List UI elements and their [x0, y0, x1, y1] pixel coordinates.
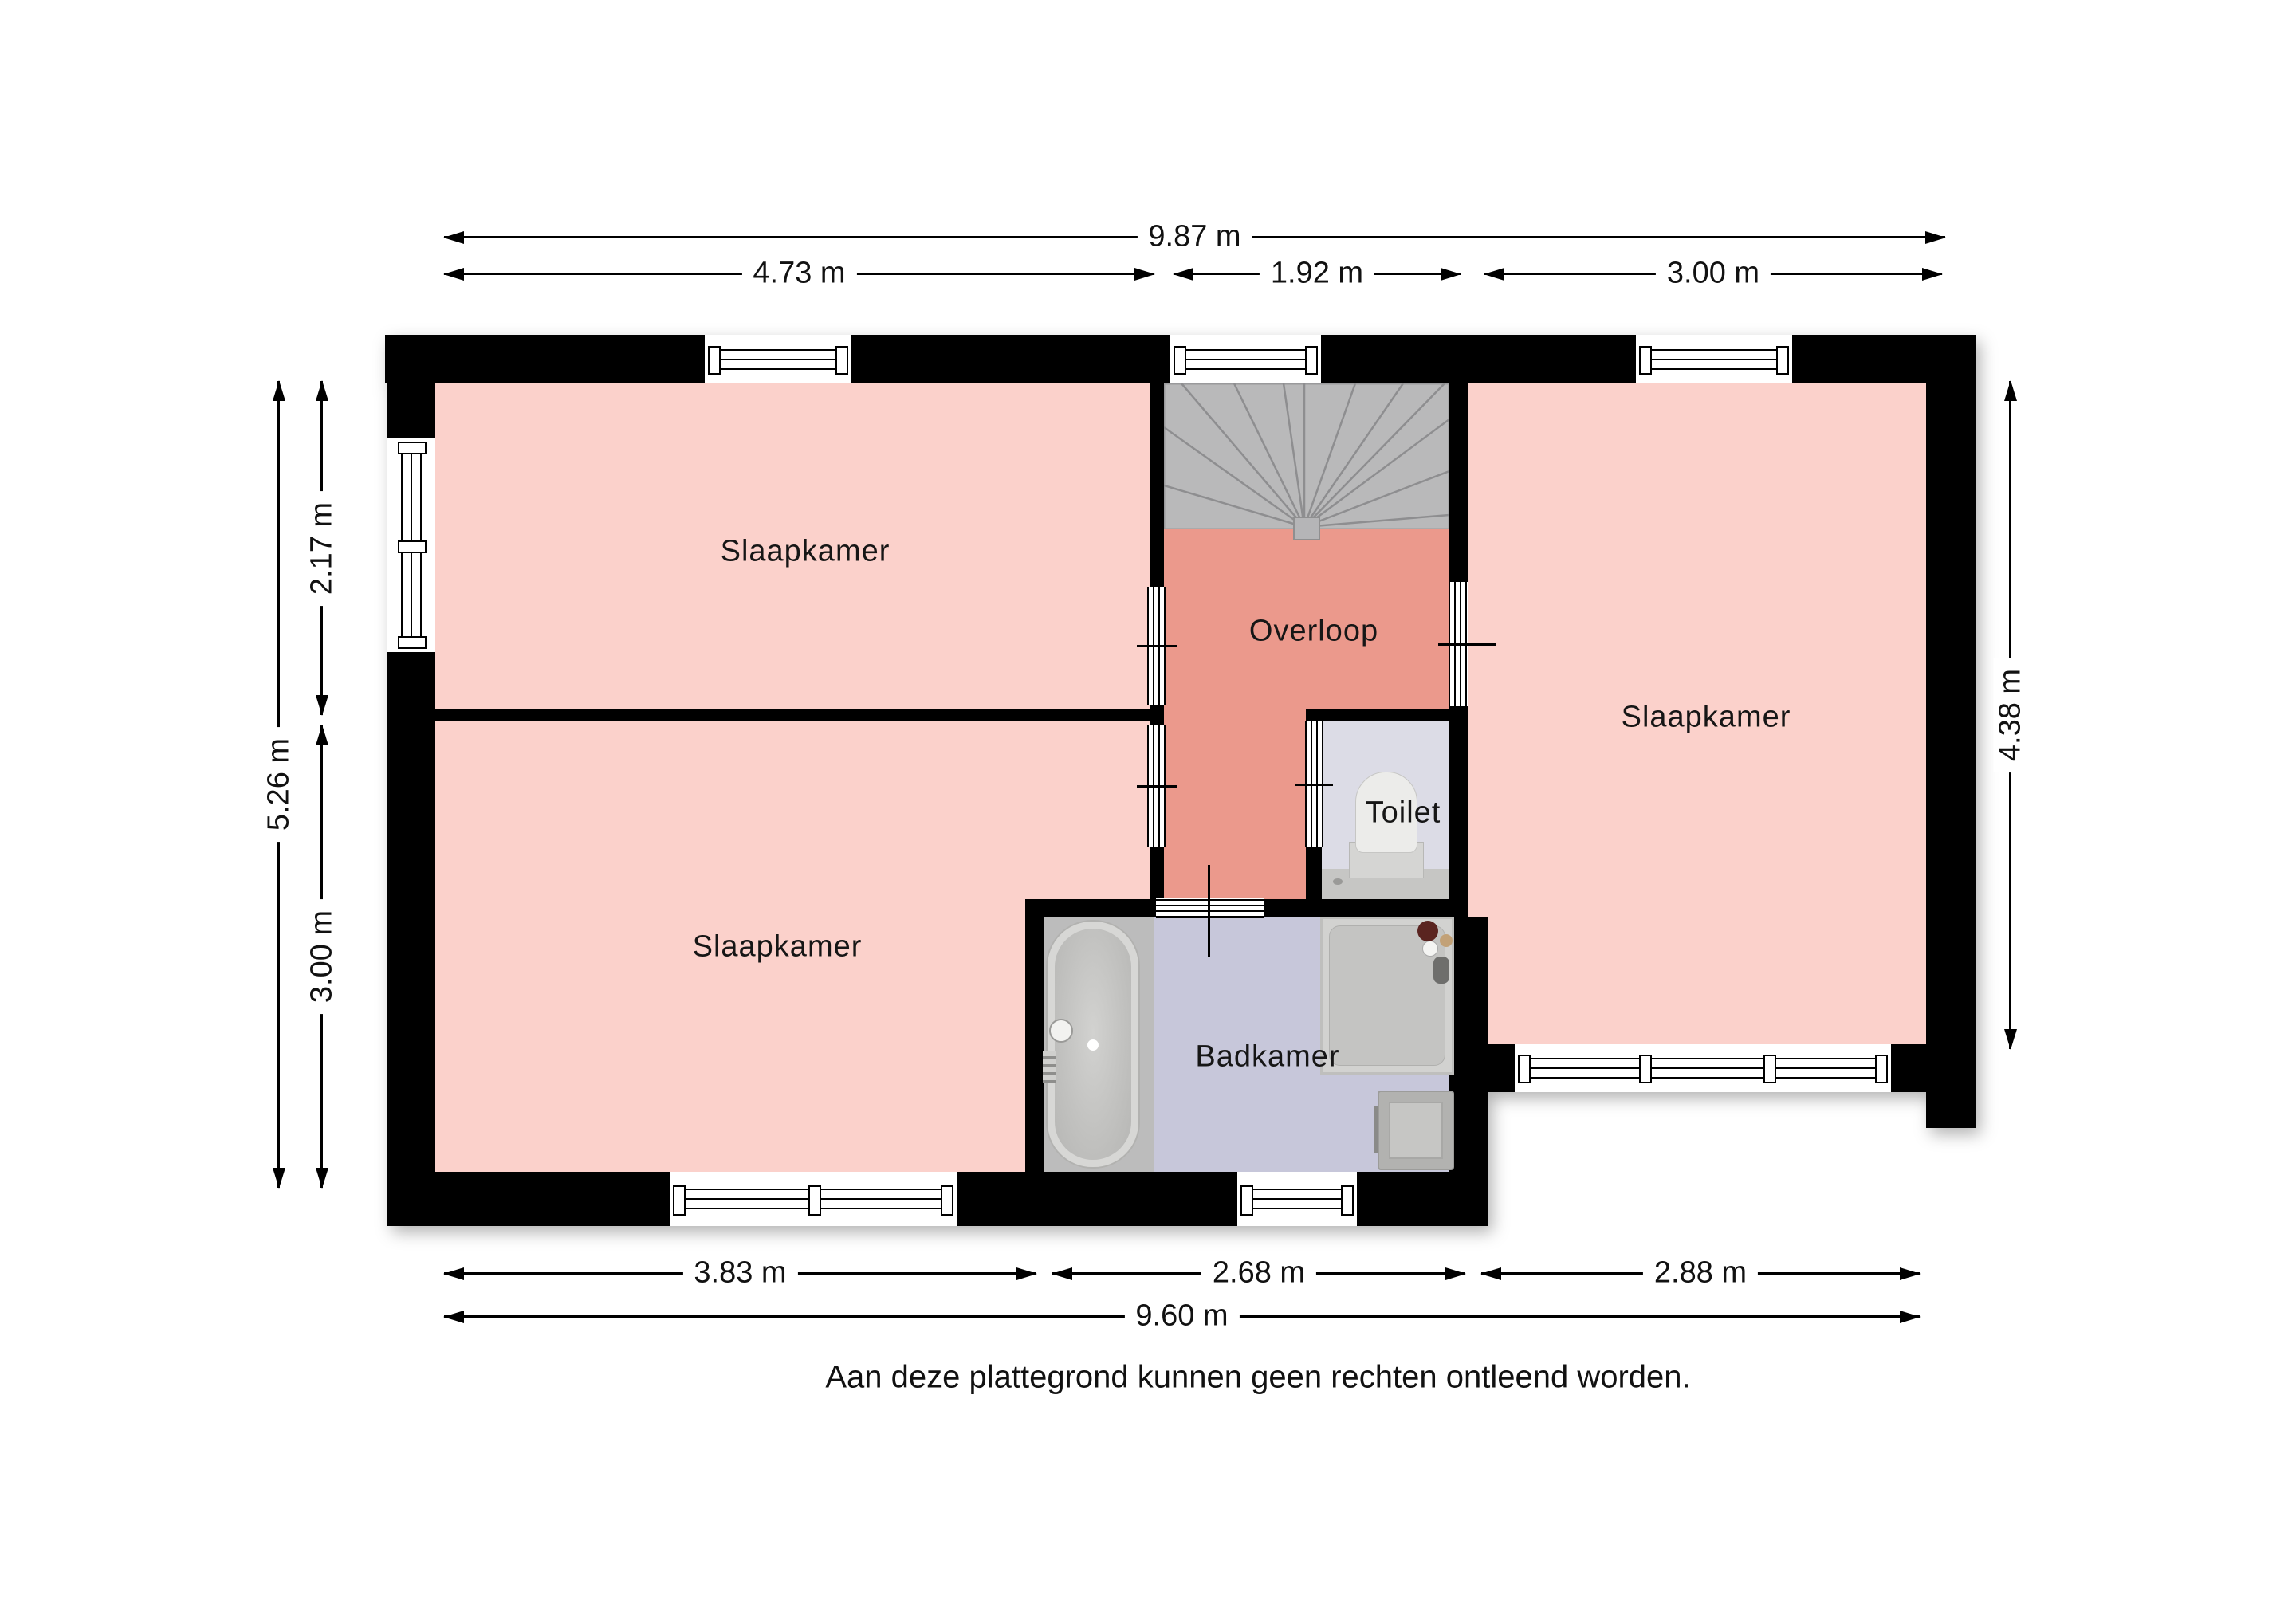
shower-accessory-dark: [1417, 921, 1438, 941]
dim-bottom-right: 2.88 m: [1481, 1272, 1920, 1275]
dim-bottom-middle-label: 2.68 m: [1201, 1256, 1316, 1291]
dim-top-right-label: 3.00 m: [1656, 257, 1771, 291]
dim-top-left-label: 4.73 m: [741, 257, 856, 291]
wall-toilet-top: [1306, 709, 1468, 721]
wall-right: [1926, 335, 1976, 1128]
window-left-bedroom-side: [387, 438, 435, 652]
door-bedroom-right-swing: [1438, 643, 1496, 646]
shower-faucet: [1433, 957, 1449, 984]
dim-bottom-total-label: 9.60 m: [1124, 1299, 1239, 1334]
sink-fixture: [1378, 1091, 1454, 1170]
room-label-bathroom: Badkamer: [1195, 1040, 1339, 1075]
window-bottom-right-bedroom: [1515, 1044, 1891, 1092]
dim-bottom-left-label: 3.83 m: [682, 1256, 797, 1291]
disclaimer-text: Aan deze plattegrond kunnen geen rechten…: [825, 1360, 1690, 1396]
wall-between-left-bedrooms: [435, 709, 1164, 721]
dim-top-left: 4.73 m: [444, 273, 1154, 275]
window-top-right-bedroom: [1636, 335, 1792, 383]
room-bedroom-bottom-left: [435, 721, 1150, 899]
dim-bottom-middle: 2.68 m: [1052, 1272, 1465, 1275]
room-label-bedroom-right: Slaapkamer: [1622, 701, 1791, 735]
towel-rail: [1043, 1051, 1056, 1083]
room-label-bedroom-bottom-left: Slaapkamer: [693, 930, 863, 965]
window-bottom-bathroom: [1237, 1172, 1357, 1226]
wall-bathroom-right: [1449, 917, 1488, 1172]
dim-top-total: 9.87 m: [444, 236, 1945, 238]
wall-landing-right-lower: [1449, 706, 1468, 917]
door-bedroom-bottom-left-swing: [1137, 785, 1177, 788]
dim-left-total: 5.26 m: [277, 381, 280, 1188]
dim-left-lower: 3.00 m: [320, 725, 323, 1188]
door-bedroom-top-left-swing: [1137, 645, 1177, 647]
dim-top-right: 3.00 m: [1484, 273, 1942, 275]
dim-right-side: 4.38 m: [2009, 381, 2011, 1049]
dim-bottom-right-label: 2.88 m: [1643, 1256, 1758, 1291]
wall-landing-left-lower: [1150, 847, 1164, 901]
dim-left-lower-label: 3.00 m: [305, 899, 340, 1014]
dim-top-middle: 1.92 m: [1174, 273, 1461, 275]
wall-bathroom-left: [1025, 899, 1044, 1172]
bathtub-fixture: [1046, 920, 1140, 1169]
window-bottom-left-bedroom: [670, 1172, 957, 1226]
dim-left-upper: 2.17 m: [320, 381, 323, 715]
door-toilet-swing: [1295, 784, 1333, 786]
dim-top-total-label: 9.87 m: [1137, 220, 1252, 254]
shower-fixture: [1320, 917, 1454, 1075]
wall-landing-right-upper: [1449, 383, 1468, 582]
wall-landing-left-junction: [1150, 705, 1164, 725]
room-label-bedroom-top-left: Slaapkamer: [721, 535, 890, 569]
dim-bottom-left: 3.83 m: [444, 1272, 1036, 1275]
shower-accessory-tan: [1440, 934, 1453, 947]
door-bathroom-swing: [1208, 865, 1210, 957]
toilet-flush-button: [1333, 878, 1343, 885]
dim-left-upper-label: 2.17 m: [305, 490, 340, 605]
wall-toilet-left: [1306, 847, 1322, 901]
dim-bottom-total: 9.60 m: [444, 1315, 1920, 1318]
room-landing-lower: [1164, 709, 1306, 899]
dim-top-middle-label: 1.92 m: [1260, 257, 1374, 291]
dim-right-side-label: 4.38 m: [1994, 658, 2028, 772]
dim-left-total-label: 5.26 m: [262, 727, 297, 842]
floorplan-page: 9.87 m 4.73 m 1.92 m 3.00 m 5.26 m 2.17 …: [0, 0, 2296, 1623]
shower-accessory-white: [1422, 941, 1438, 957]
stairs-newel-post: [1293, 517, 1320, 540]
bathtub-faucet: [1049, 1019, 1073, 1043]
stairs: [1164, 383, 1449, 529]
window-top-left-bedroom: [705, 335, 851, 383]
wall-landing-left-upper: [1150, 383, 1164, 587]
window-top-stairs: [1170, 335, 1321, 383]
room-label-landing: Overloop: [1249, 615, 1378, 649]
room-label-toilet: Toilet: [1366, 796, 1441, 831]
